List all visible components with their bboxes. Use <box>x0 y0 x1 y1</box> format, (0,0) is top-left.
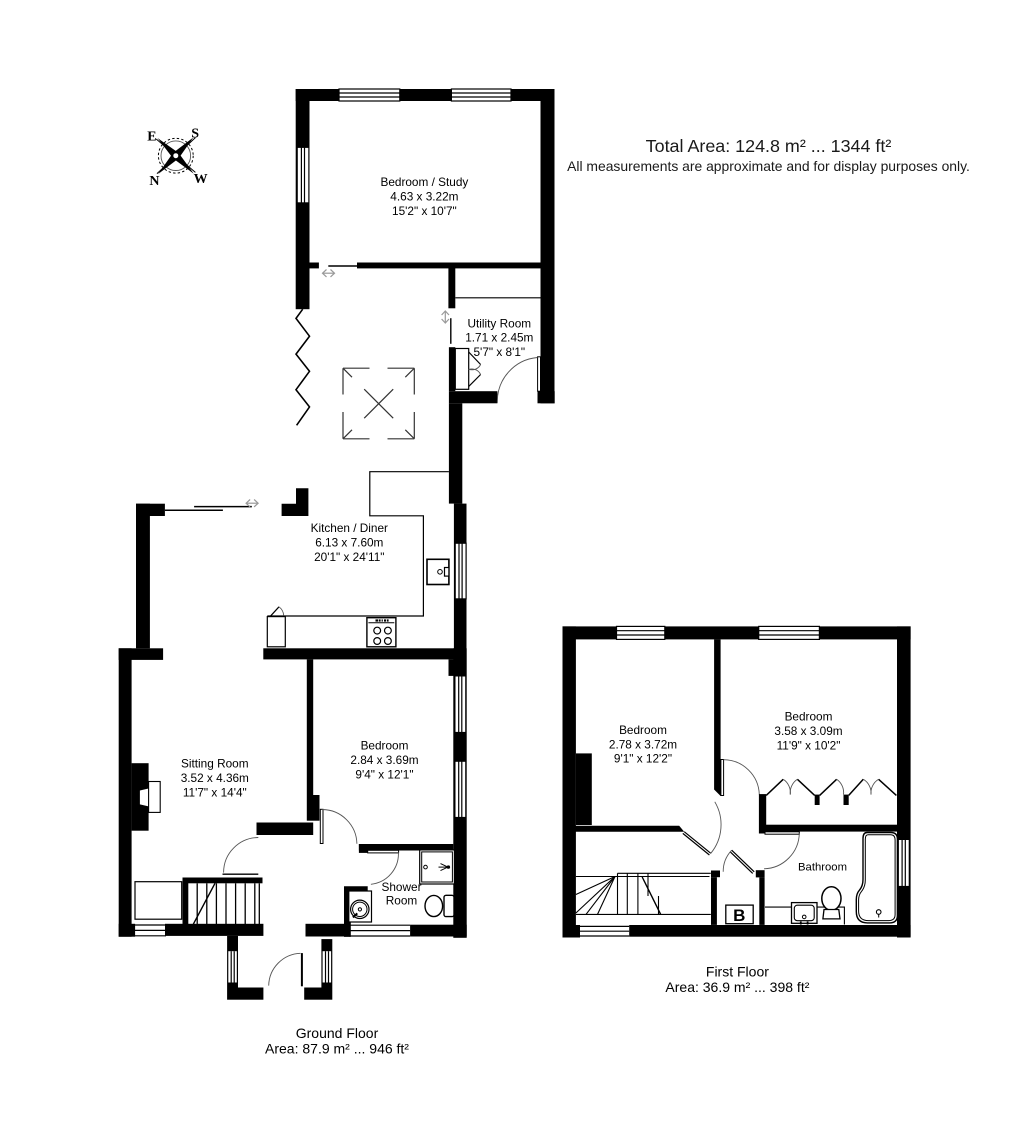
svg-text:Utility Room: Utility Room <box>468 316 532 330</box>
svg-text:2.84 x 3.69m: 2.84 x 3.69m <box>350 753 418 767</box>
svg-text:20'1" x 24'11": 20'1" x 24'11" <box>314 550 384 564</box>
svg-text:9'1" x 12'2": 9'1" x 12'2" <box>614 752 672 766</box>
svg-text:Kitchen / Diner: Kitchen / Diner <box>311 521 388 535</box>
svg-text:15'2" x 10'7": 15'2" x 10'7" <box>392 204 457 218</box>
svg-text:11'9" x 10'2": 11'9" x 10'2" <box>777 739 841 753</box>
svg-text:3.52 x 4.36m: 3.52 x 4.36m <box>181 771 249 785</box>
svg-text:Bathroom: Bathroom <box>798 862 847 874</box>
svg-text:6.13 x 7.60m: 6.13 x 7.60m <box>315 536 383 550</box>
svg-text:Ground Floor: Ground Floor <box>296 1025 379 1041</box>
svg-text:E: E <box>147 130 156 145</box>
svg-text:Shower: Shower <box>382 880 422 894</box>
svg-text:S: S <box>191 127 199 142</box>
svg-text:Bedroom: Bedroom <box>619 723 667 737</box>
svg-text:1.71 x 2.45m: 1.71 x 2.45m <box>465 331 533 345</box>
svg-text:W: W <box>194 172 208 187</box>
svg-text:Area: 36.9 m² ... 398 ft²: Area: 36.9 m² ... 398 ft² <box>665 979 809 995</box>
svg-text:First Floor: First Floor <box>706 964 769 980</box>
svg-text:B: B <box>733 906 745 925</box>
svg-text:Total Area: 124.8 m² ... 1344: Total Area: 124.8 m² ... 1344 ft² <box>646 136 892 156</box>
svg-text:All measurements are approxima: All measurements are approximate and for… <box>567 158 970 174</box>
svg-text:Room: Room <box>386 894 418 908</box>
svg-text:Bedroom: Bedroom <box>361 739 409 753</box>
svg-text:Bedroom / Study: Bedroom / Study <box>380 175 468 189</box>
svg-text:5'7" x 8'1": 5'7" x 8'1" <box>474 345 526 359</box>
svg-text:4.63 x 3.22m: 4.63 x 3.22m <box>390 190 458 204</box>
svg-text:Sitting Room: Sitting Room <box>181 757 249 771</box>
svg-text:Area: 87.9 m² ... 946 ft²: Area: 87.9 m² ... 946 ft² <box>265 1041 409 1057</box>
svg-text:N: N <box>149 174 159 189</box>
svg-text:9'4" x 12'1": 9'4" x 12'1" <box>355 768 413 782</box>
svg-text:3.58 x 3.09m: 3.58 x 3.09m <box>774 724 842 738</box>
svg-text:2.78 x 3.72m: 2.78 x 3.72m <box>609 737 677 751</box>
svg-text:Bedroom: Bedroom <box>785 710 833 724</box>
svg-text:11'7" x 14'4": 11'7" x 14'4" <box>183 785 247 799</box>
